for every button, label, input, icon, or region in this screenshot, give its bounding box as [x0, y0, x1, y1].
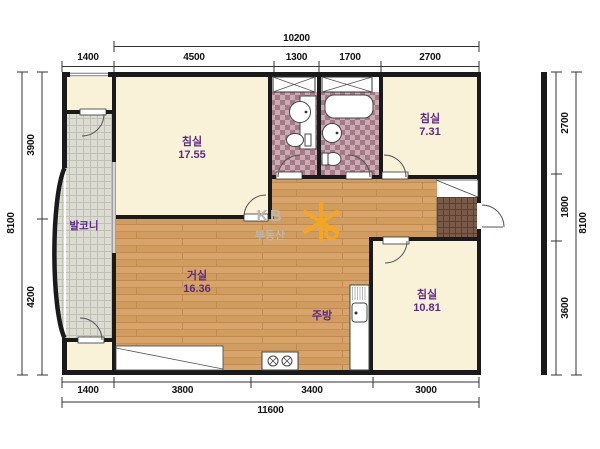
dim-top-seg-1: 1400 [62, 51, 114, 64]
utility-top-fill [66, 77, 112, 110]
dim-bottom-seg-2: 3800 [114, 384, 251, 397]
dim-bottom-seg-1: 1400 [62, 384, 114, 397]
room-name: 침실 [387, 289, 467, 302]
dim-bottom-seg-3: 3400 [251, 384, 373, 397]
door-leaf [382, 172, 408, 179]
top-window [70, 72, 108, 77]
built-in-unit [116, 346, 223, 370]
side-wall-bar [541, 72, 547, 375]
gas-range-icon [262, 352, 298, 370]
room-label-bedroom-small: 침실 7.31 [390, 113, 470, 138]
dim-bottom-seg-4: 3000 [373, 384, 479, 397]
bathtub-icon [325, 95, 373, 118]
dim-right-total: 8100 [578, 203, 590, 243]
dim-right-seg-3: 3600 [560, 288, 572, 328]
room-area: 16.36 [157, 283, 237, 296]
shoe-closet [436, 180, 478, 197]
room-name: 주방 [282, 310, 362, 323]
dim-bottom-total: 11600 [62, 404, 479, 417]
entry-door-arc [482, 205, 504, 227]
dim-left-seg-1: 3900 [26, 125, 38, 165]
dim-top-seg-4: 1700 [319, 51, 381, 64]
entry-door-gap [477, 203, 481, 229]
room-area: 17.55 [152, 149, 232, 162]
entry-tile-fill [437, 197, 477, 237]
dim-top-total: 10200 [114, 32, 479, 45]
hallway-fill [272, 179, 437, 237]
dim-top-seg-3: 1300 [274, 51, 319, 64]
toilet-tank-icon [322, 153, 328, 165]
room-area: 7.31 [390, 126, 470, 139]
door-leaf [276, 172, 302, 179]
dim-right-seg-1: 2700 [560, 103, 572, 143]
dim-top-seg-2: 4500 [114, 51, 274, 64]
room-label-bedroom-bottom: 침실 10.81 [387, 289, 467, 314]
watermark-sub: 부동산 [244, 227, 296, 243]
room-name: 발코니 [44, 220, 124, 233]
door-leaf [78, 337, 104, 343]
dim-right-seg-2: 1800 [560, 187, 572, 227]
room-label-living: 거실 16.36 [157, 270, 237, 295]
door-leaf [80, 109, 106, 115]
toilet-icon [287, 134, 304, 147]
floorplan-page: 10200 1400 4500 1300 1700 2700 1400 3800… [0, 0, 600, 449]
dim-left-seg-2: 4200 [26, 277, 38, 317]
door-leaf [383, 237, 409, 244]
room-label-bedroom-main: 침실 17.55 [152, 136, 232, 161]
room-name: 침실 [152, 136, 232, 149]
door-leaf [346, 172, 372, 179]
dim-top-seg-5: 2700 [381, 51, 479, 64]
room-label-kitchen: 주방 [282, 310, 362, 323]
room-name: 거실 [157, 270, 237, 283]
toilet-tank-icon [305, 134, 311, 146]
room-label-balcony: 발코니 [44, 220, 124, 233]
duct-boxes [273, 77, 372, 92]
watermark-brand: KB [250, 208, 290, 226]
utility-bottom-fill [66, 342, 112, 370]
room-area: 10.81 [387, 302, 467, 315]
room-name: 침실 [390, 113, 470, 126]
sink-icon [323, 124, 342, 143]
dim-left-total: 8100 [6, 203, 18, 243]
